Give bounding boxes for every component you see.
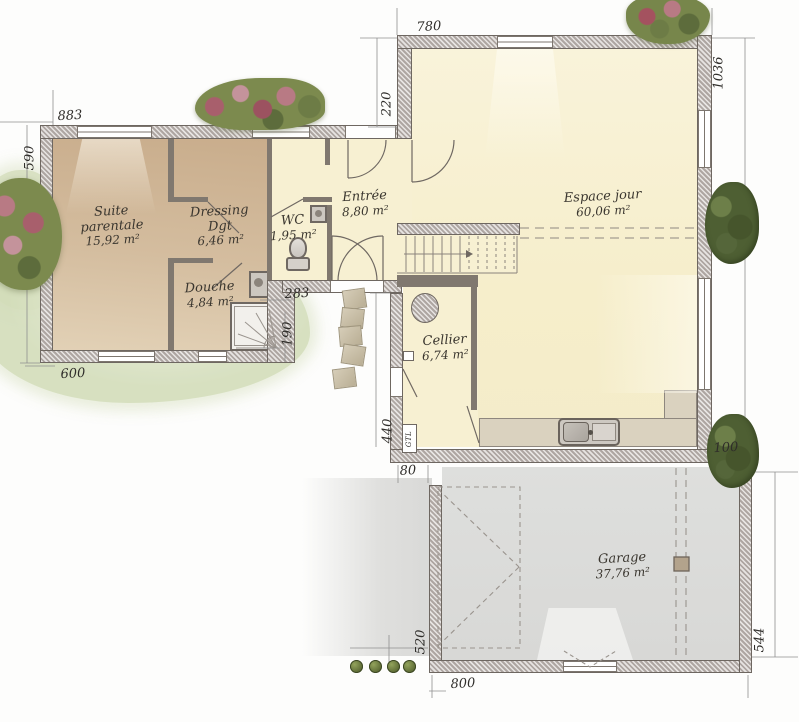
dim-entry-inset: 220: [380, 92, 395, 117]
room-name: Dressing Dgt: [179, 203, 260, 236]
gtl-label: GTL: [406, 430, 414, 446]
kitchen-counter-return: [664, 390, 697, 419]
room-label-espace-jour: Espace jour 60,06 m²: [547, 187, 658, 221]
dim-garage-gap: 80: [399, 463, 416, 479]
front-door-opening: [345, 126, 396, 138]
dim-garage-left: 520: [414, 630, 429, 655]
window-living-top: [497, 36, 553, 48]
shrub-dot: [350, 660, 363, 673]
partition-dressing-lower: [168, 197, 208, 202]
structural-column: [411, 293, 439, 323]
dim-left-wing-bottom: 600: [60, 366, 86, 382]
floor-plan: GTL: [0, 0, 799, 722]
window-suite-south: [98, 351, 155, 362]
dim-left-wing-side: 590: [23, 146, 38, 171]
dim-porch-width: 283: [284, 286, 310, 302]
floor-stairs: [397, 235, 517, 273]
room-label-entree: Entrée 8,80 m²: [329, 188, 400, 220]
wall-garage-right: [739, 455, 752, 673]
bathroom-sink-bowl: [254, 278, 263, 287]
kitchen-faucet: [588, 430, 593, 435]
dim-garage-bottom: 800: [450, 676, 476, 692]
window-suite: [77, 126, 152, 138]
dim-porch-depth: 190: [281, 322, 296, 347]
room-label-dressing: Dressing Dgt 6,46 m²: [179, 203, 261, 250]
shrub-dot: [387, 660, 400, 673]
shrub-dot: [369, 660, 382, 673]
driveway: [302, 478, 432, 656]
stepping-stone: [341, 343, 367, 366]
partition-wing-entry: [267, 139, 272, 280]
toilet-tank: [286, 257, 310, 271]
gtl-technical-box: GTL: [402, 424, 417, 453]
bush-right-upper: [705, 182, 759, 264]
dim-living-top: 780: [416, 19, 442, 35]
bush-top-left: [195, 78, 325, 130]
kitchen-sink-basin: [563, 422, 589, 442]
partition-entry-stub: [325, 139, 330, 165]
dim-garage-offset: 100: [713, 440, 739, 456]
window-living-right-upper: [698, 110, 711, 168]
dim-garage-right: 544: [753, 628, 768, 653]
dim-cellier-side: 440: [381, 419, 396, 444]
wall-stairs: [397, 223, 520, 235]
wall-living-left: [397, 35, 412, 139]
dim-living-right: 1036: [712, 56, 727, 89]
partition-wc-top: [303, 197, 332, 202]
window-living-right-lower: [698, 278, 711, 390]
wall-garage-left: [429, 485, 442, 673]
room-label-douche: Douche 4,84 m²: [169, 279, 250, 311]
wall-wing-bottom: [40, 350, 295, 363]
kitchen-sink-drainer: [592, 423, 616, 441]
partition-dressing-douche: [168, 258, 213, 263]
shrub-dot: [403, 660, 416, 673]
room-area: 1,95 m²: [268, 227, 319, 243]
partition-suite-dressing: [168, 139, 174, 202]
room-label-cellier: Cellier 6,74 m²: [412, 332, 477, 363]
window-douche-south: [198, 351, 227, 362]
room-label-garage: Garage 37,76 m²: [569, 549, 675, 582]
garage-door: [563, 661, 617, 672]
room-label-wc: WC 1,95 m²: [267, 213, 318, 244]
partition-under-stairs: [397, 275, 478, 287]
stepping-stone: [332, 367, 357, 390]
wall-living-bottom: [390, 449, 752, 463]
dim-left-wing-top: 883: [57, 108, 83, 124]
cellier-side-door-opening: [391, 367, 402, 397]
room-label-suite-parentale: Suite parentale 15,92 m²: [61, 202, 163, 250]
